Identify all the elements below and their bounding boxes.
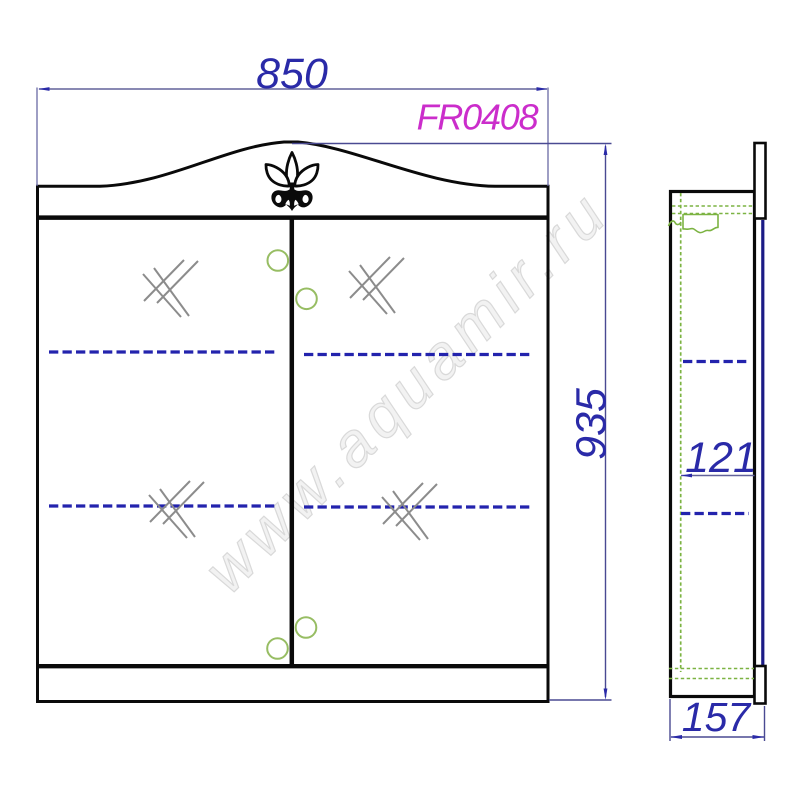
svg-text:157: 157 — [682, 694, 753, 740]
svg-text:850: 850 — [256, 50, 328, 98]
svg-text:935: 935 — [568, 387, 616, 460]
svg-text:FR0408: FR0408 — [417, 97, 539, 138]
